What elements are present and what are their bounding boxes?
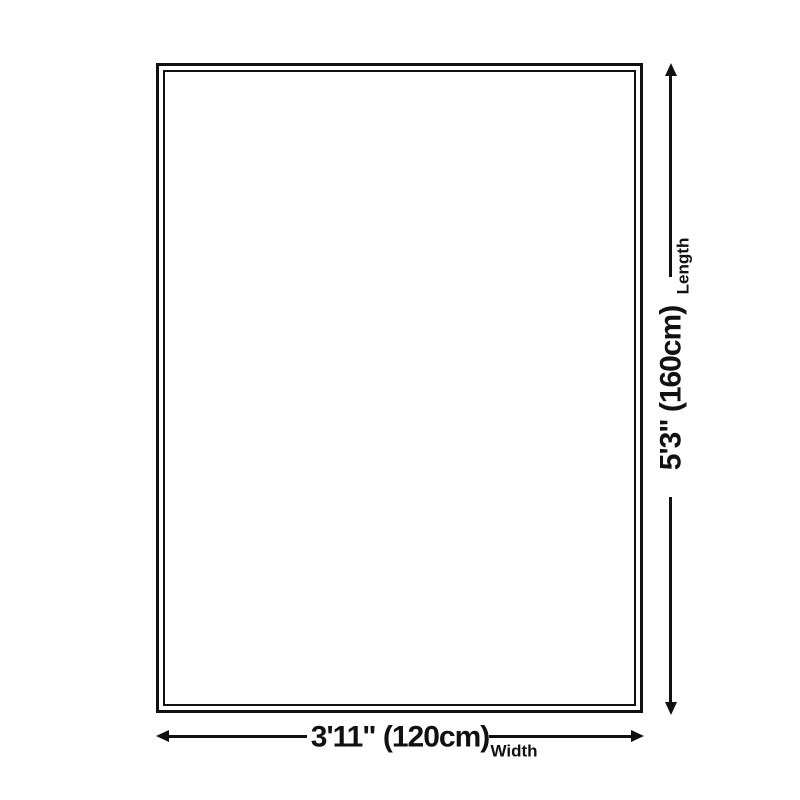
arrow-right-icon [631,730,644,742]
length-line-bottom-segment [669,497,672,704]
length-label: Length [675,238,694,295]
product-outline-inner [163,70,636,706]
product-outline-outer [156,63,643,713]
size-diagram: Length 5'3" (160cm) 3'11" (120cm) Width [0,0,800,800]
length-line-top-segment [669,74,672,277]
width-label: Width [490,743,537,762]
arrow-down-icon [665,702,677,715]
width-line-right-segment [489,735,632,738]
length-value: 5'3" (160cm) [655,306,688,470]
width-value: 3'11" (120cm) [311,721,489,754]
width-line-left-segment [167,735,307,738]
